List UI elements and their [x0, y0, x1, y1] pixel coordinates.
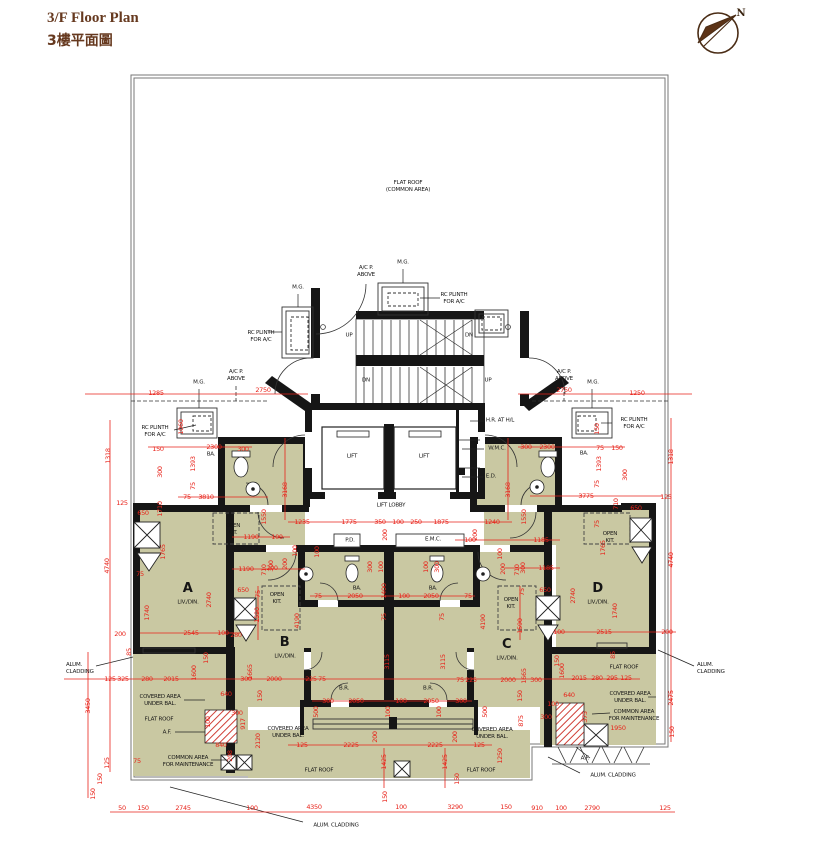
alum-cladding-label: ALUM. CLADDING: [697, 662, 725, 676]
dim-label: 4740: [103, 558, 111, 573]
stair-up-label: UP: [346, 333, 353, 340]
dim-label: 1765: [159, 544, 167, 559]
dim-label: 1875: [433, 518, 448, 526]
dim-label: 3115: [439, 654, 447, 669]
bedroom-label: B.R.: [339, 686, 349, 693]
dim-label: 300: [540, 713, 552, 721]
dim-label: 1318: [104, 448, 112, 463]
dim-label: 100: [435, 706, 443, 718]
dim-label: 75: [254, 590, 262, 598]
dim-label: 100: [555, 804, 567, 812]
mg-label: M.G.: [397, 260, 409, 267]
common-area-label: COMMON AREA FOR MAINTENANCE: [609, 709, 659, 723]
dim-label: 4740: [667, 552, 675, 567]
ed-label: E.D.: [486, 474, 496, 481]
common-area-label: COMMON AREA FOR MAINTENANCE: [163, 755, 213, 769]
covered-area-label: COVERED AREA UNDER BAL.: [609, 691, 650, 705]
dim-label: 300: [433, 561, 441, 573]
living-dining-label: LIV./DIN.: [496, 656, 517, 663]
dim-label: 2015: [571, 674, 586, 682]
dim-label: 150: [593, 423, 601, 435]
bathroom-label: BA.: [207, 452, 216, 459]
dim-label: 650: [539, 586, 551, 594]
dim-label: 2300: [539, 443, 554, 451]
pd-label: P.D.: [345, 538, 354, 545]
dim-label: 75: [593, 480, 601, 488]
covered-area-label: COVERED AREA UNDER BAL.: [139, 694, 180, 708]
dim-label: 100: [398, 592, 410, 600]
dim-label: 1285: [148, 389, 163, 397]
dim-label: 125: [116, 499, 128, 507]
dim-label: 1185: [533, 536, 548, 544]
dim-label: 2050: [347, 592, 362, 600]
dim-label: 100: [422, 561, 430, 573]
dim-label: 200: [114, 630, 126, 638]
dim-label: 1710: [156, 501, 164, 516]
dim-label: 150: [202, 652, 210, 664]
dim-label: 250: [410, 518, 422, 526]
bedroom-label: B.R.: [423, 686, 433, 693]
dim-label: 1393: [189, 456, 197, 471]
dim-label: 300: [455, 697, 467, 705]
dim-label: 2750: [255, 386, 270, 394]
af-label: A.F.: [163, 730, 172, 737]
dim-label: 4350: [306, 803, 321, 811]
alum-cladding-label: ALUM. CLADDING: [590, 773, 635, 780]
bathroom-label: BA.: [580, 451, 589, 458]
dim-label: 200: [499, 563, 507, 575]
dim-label: 100: [464, 536, 476, 544]
dim-label: 300: [231, 709, 243, 717]
dim-label: 1250: [629, 389, 644, 397]
dim-label: 1775: [341, 518, 356, 526]
living-dining-label: LIV./DIN.: [274, 654, 295, 661]
flat-c-label: C: [502, 637, 512, 653]
dim-label: 100: [384, 706, 392, 718]
lift-label: LIFT: [419, 454, 429, 461]
dim-label: 100: [496, 548, 504, 560]
flat-a-label: A: [183, 581, 194, 597]
dim-label: 2015: [163, 675, 178, 683]
dim-label: 300: [156, 466, 164, 478]
dim-label: 325: [117, 675, 129, 683]
dim-label: 1600: [190, 665, 198, 680]
dim-label: 150: [89, 788, 97, 800]
dim-label: 1060: [177, 419, 185, 434]
dim-label: 1318: [667, 449, 675, 464]
dim-label: 150: [96, 773, 104, 785]
dim-label: 2050: [423, 592, 438, 600]
dim-label: 350: [374, 518, 386, 526]
dim-label: 3115: [383, 654, 391, 669]
dim-label: 200: [451, 731, 459, 743]
dim-label: 650: [630, 504, 642, 512]
dim-label: 75: [133, 757, 141, 765]
dim-label: 3450: [84, 698, 92, 713]
dim-label: 300: [267, 560, 275, 572]
dim-label: 75: [380, 613, 388, 621]
dim-label: 280: [591, 674, 603, 682]
dim-label: 1190: [243, 533, 258, 541]
dim-label: 200: [281, 558, 289, 570]
dim-label: 150: [553, 655, 561, 667]
dim-label: 125: [620, 674, 632, 682]
flat-roof-label: FLAT ROOF: [610, 665, 639, 672]
dim-label: 100: [553, 628, 565, 636]
dim-label: 125: [660, 493, 672, 501]
dim-label: 200: [661, 628, 673, 636]
open-kitchen-label: OPEN KIT.: [270, 592, 284, 606]
dim-label: 3810: [198, 493, 213, 501]
covered-area-label: COVERED AREA UNDER BAL.: [267, 726, 308, 740]
dim-label: 710: [612, 498, 620, 510]
dim-label: 2745: [175, 804, 190, 812]
dim-label: 100: [217, 629, 229, 637]
dim-label: 1185: [538, 564, 553, 572]
dim-label: 910: [531, 804, 543, 812]
dim-label: 125: [296, 741, 308, 749]
rc-plinth-label: RC PLINTH FOR A/C: [142, 425, 169, 439]
dim-label: 150: [453, 773, 461, 785]
dim-label: 650: [137, 509, 149, 517]
flat-b-label: B: [280, 635, 290, 651]
dim-label: 300: [520, 443, 532, 451]
wmc-label: W.M.C.: [488, 446, 505, 453]
dim-label: 75: [314, 592, 322, 600]
dim-label: 2120: [254, 733, 262, 748]
dim-label: 2515: [596, 628, 611, 636]
dim-label: 2790: [584, 804, 599, 812]
dim-label: 200: [371, 731, 379, 743]
dim-label: 2300: [206, 443, 221, 451]
dim-label: 150: [256, 690, 264, 702]
dim-label: 1400: [380, 583, 388, 598]
dim-label: 280: [141, 675, 153, 683]
dim-label: 2750: [556, 386, 571, 394]
dim-label: 100: [395, 803, 407, 811]
ac-platform-label: A/C P. ABOVE: [227, 369, 245, 383]
dim-label: 300: [621, 469, 629, 481]
dim-label: 150: [611, 444, 623, 452]
dim-label: 50: [118, 804, 126, 812]
dim-label: 100: [392, 518, 404, 526]
dim-label: 2740: [569, 588, 577, 603]
stair-dn-label: DN: [465, 333, 473, 340]
dim-label: 1665: [246, 664, 254, 679]
dim-label: 375: [581, 711, 589, 723]
dim-label: 1665: [520, 668, 528, 683]
rc-plinth-label: RC PLINTH FOR A/C: [248, 330, 275, 344]
dim-label: 3775: [578, 492, 593, 500]
dim-label: 2225: [343, 741, 358, 749]
dim-label: 85: [609, 651, 617, 659]
open-kitchen-label: OPEN KIT.: [226, 523, 240, 537]
dim-label: 100: [291, 545, 299, 557]
dim-label: 1765: [599, 540, 607, 555]
dim-label: 75: [518, 588, 526, 596]
dim-label: 125: [473, 741, 485, 749]
dim-label: 4190: [479, 614, 487, 629]
dim-label: 85: [125, 648, 133, 656]
dim-label: 125: [104, 675, 116, 683]
dim-label: 1950: [610, 724, 625, 732]
dim-label: 300: [519, 562, 527, 574]
dim-label: 300: [237, 445, 249, 453]
open-kitchen-label: OPEN KIT.: [504, 597, 518, 611]
rc-plinth-label: RC PLINTH FOR A/C: [441, 292, 468, 306]
dim-label: 75: [464, 592, 472, 600]
dim-label: 2050: [423, 697, 438, 705]
flat-roof-common-area-label: FLAT ROOF (COMMON AREA): [386, 180, 430, 194]
dim-label: 1240: [484, 518, 499, 526]
hose-reel-label: H.R. AT H/L: [486, 418, 514, 425]
dim-label: 150: [381, 791, 389, 803]
mg-label: M.G.: [193, 380, 205, 387]
mg-label: M.G.: [292, 285, 304, 292]
dim-label: 3290: [447, 803, 462, 811]
dim-label: 2475: [667, 690, 675, 705]
dim-label: 150: [500, 803, 512, 811]
dim-label: 125: [659, 804, 671, 812]
dim-label: 300: [530, 676, 542, 684]
dim-label: 1590: [253, 607, 261, 622]
dim-label: 1740: [143, 605, 151, 620]
dim-label: 75: [136, 570, 144, 578]
dim-label: 150: [152, 445, 164, 453]
dim-label: 208: [226, 750, 234, 762]
dim-label: 300: [322, 697, 334, 705]
emc-label: E.M.C.: [425, 537, 441, 544]
flat-d-label: D: [592, 581, 603, 597]
alum-cladding-label: ALUM. CLADDING: [66, 662, 94, 676]
dim-label: 125: [103, 757, 111, 769]
flat-roof-label: FLAT ROOF: [305, 768, 334, 775]
dim-label: 225: [465, 676, 477, 684]
stair-up-label: UP: [485, 378, 492, 385]
dim-label: 1393: [595, 456, 603, 471]
dim-label: 75: [189, 482, 197, 490]
dim-label: 640: [220, 690, 232, 698]
dim-label: 875: [517, 715, 525, 727]
stair-dn-label: DN: [362, 378, 370, 385]
floor-plan-page: 3/F Floor Plan 3樓平面圖: [0, 0, 827, 859]
dim-label: 150: [668, 726, 676, 738]
dim-label: 100: [204, 716, 212, 728]
dim-label: 1250: [496, 748, 504, 763]
dim-label: 1190: [238, 565, 253, 573]
dim-label: 100: [313, 546, 321, 558]
covered-area-label: COVERED AREA UNDER BAL.: [471, 727, 512, 741]
flat-roof-label: FLAT ROOF: [145, 717, 174, 724]
lift-label: LIFT: [347, 454, 357, 461]
dim-label: 1740: [611, 603, 619, 618]
rc-plinth-label: RC PLINTH FOR A/C: [621, 417, 648, 431]
dim-label: 100: [246, 804, 258, 812]
dim-label: 917: [239, 718, 247, 730]
dim-label: 75: [183, 493, 191, 501]
dim-label: 1550: [260, 509, 268, 524]
dim-label: 640: [563, 691, 575, 699]
lift-lobby-label: LIFT LOBBY: [377, 503, 406, 510]
dim-label: 2000: [266, 675, 281, 683]
dim-label: 100: [377, 561, 385, 573]
dim-label: 295: [606, 674, 618, 682]
dim-label: 1235: [294, 518, 309, 526]
dim-label: 225: [305, 675, 317, 683]
dim-label: 300: [366, 561, 374, 573]
dim-label: 150: [516, 690, 524, 702]
dim-label: 650: [237, 586, 249, 594]
af-label: A.F.: [581, 756, 590, 763]
dim-label: 2545: [183, 629, 198, 637]
dim-label: 2050: [348, 697, 363, 705]
dim-label: 100: [547, 700, 559, 708]
dim-label: 75: [318, 675, 326, 683]
dim-label: 100: [271, 533, 283, 541]
living-dining-label: LIV./DIN.: [177, 600, 198, 607]
alum-cladding-label: ALUM. CLADDING: [313, 823, 358, 830]
north-label: N: [737, 8, 746, 21]
mg-label: M.G.: [587, 380, 599, 387]
flat-roof-label: FLAT ROOF: [467, 768, 496, 775]
dim-label: 75: [596, 444, 604, 452]
dim-label: 1425: [441, 754, 449, 769]
dim-label: 2225: [427, 741, 442, 749]
dim-label: 500: [312, 706, 320, 718]
dim-label: 840: [215, 741, 227, 749]
dim-label: 75: [593, 520, 601, 528]
dim-label: 100: [395, 697, 407, 705]
dim-label: 1425: [380, 754, 388, 769]
dim-label: 3168: [504, 482, 512, 497]
ac-platform-label: A/C P. ABOVE: [357, 265, 375, 279]
dim-label: 1550: [520, 509, 528, 524]
dim-label: 1590: [516, 618, 524, 633]
dim-label: 75: [438, 613, 446, 621]
dim-label: 75: [456, 676, 464, 684]
dim-label: 4190: [293, 613, 301, 628]
dim-label: 3168: [281, 482, 289, 497]
dim-label: 2740: [205, 592, 213, 607]
dim-label: 150: [137, 804, 149, 812]
dim-label: 200: [381, 529, 389, 541]
ac-platform-label: A/C P. ABOVE: [555, 369, 573, 383]
dim-label: 2000: [500, 676, 515, 684]
plan-annotations: FLAT ROOF (COMMON AREA)M.G.A/C P. ABOVEM…: [0, 0, 827, 859]
living-dining-label: LIV./DIN.: [587, 600, 608, 607]
dim-label: 500: [481, 706, 489, 718]
dim-label: 280: [230, 631, 242, 639]
